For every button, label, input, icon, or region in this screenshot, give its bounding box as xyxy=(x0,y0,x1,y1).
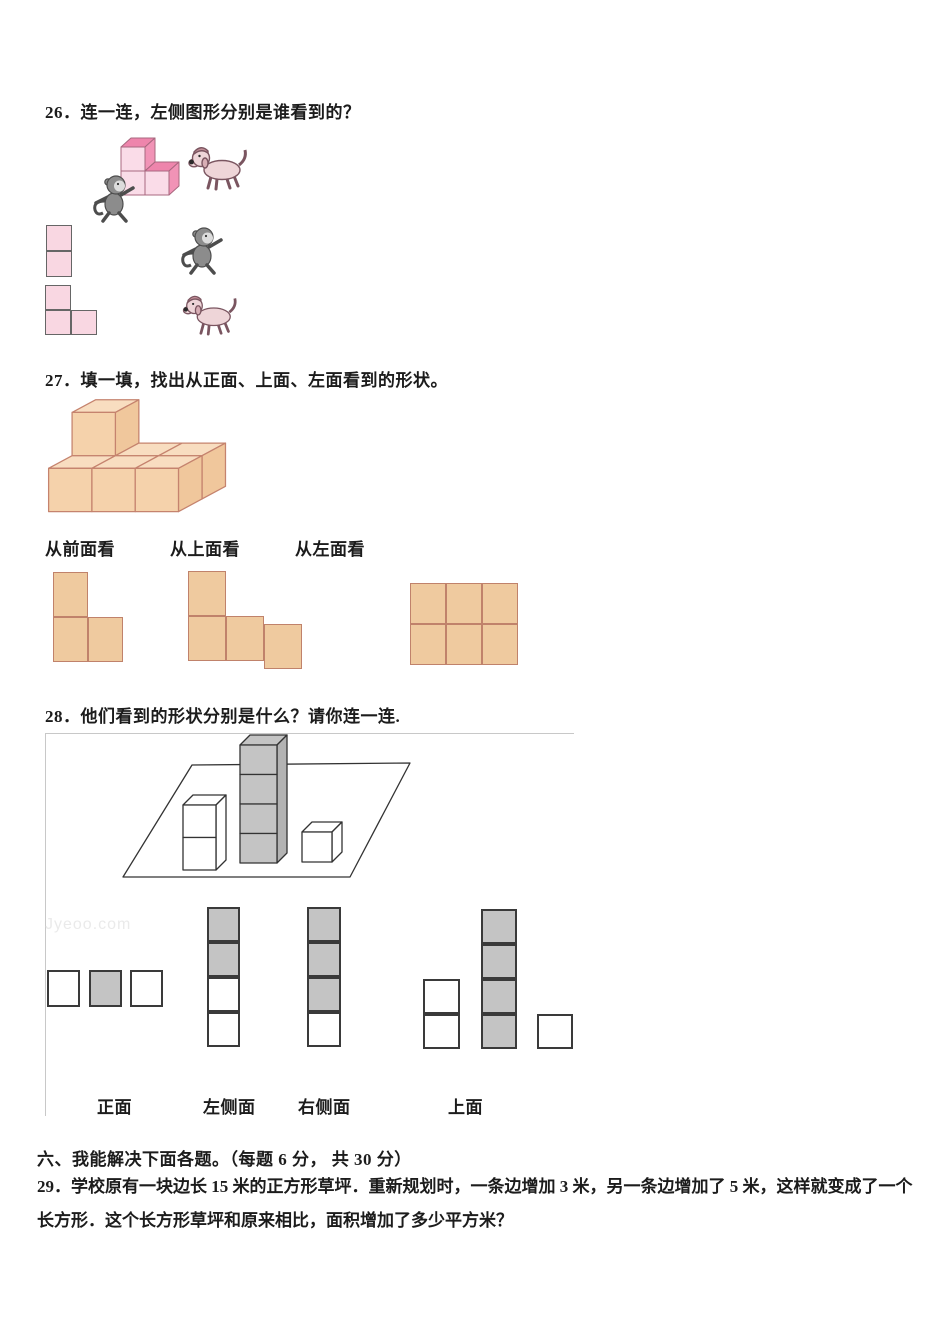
square-cell xyxy=(45,285,71,310)
view-label-front: 从前面看 xyxy=(45,535,115,560)
dog-icon xyxy=(181,292,241,336)
square-cell xyxy=(423,979,460,1014)
view-label-left: 从左面看 xyxy=(295,535,365,560)
question-29-line2: 长方形．这个长方形草坪和原来相比，面积增加了多少平方米？ xyxy=(37,1206,513,1231)
square-cell xyxy=(71,310,97,335)
square-cell xyxy=(207,907,240,942)
square-cell xyxy=(482,624,518,665)
square-cell xyxy=(188,571,226,616)
square-cell xyxy=(45,310,71,335)
square-cell xyxy=(89,970,122,1007)
question-26-text: 26．连一连，左侧图形分别是谁看到的？ xyxy=(45,98,361,123)
square-cell xyxy=(226,616,264,661)
square-cell xyxy=(207,942,240,977)
square-cell xyxy=(481,1014,517,1049)
square-cell xyxy=(188,616,226,661)
square-cell xyxy=(88,617,123,662)
square-cell xyxy=(410,624,446,665)
square-cell xyxy=(46,225,72,251)
label-right-side: 右侧面 xyxy=(298,1093,351,1118)
label-front-face: 正面 xyxy=(97,1093,132,1118)
label-top-face: 上面 xyxy=(448,1093,483,1118)
square-cell xyxy=(481,979,517,1014)
label-left-side: 左侧面 xyxy=(203,1093,256,1118)
square-cell xyxy=(446,624,482,665)
square-cell xyxy=(130,970,163,1007)
square-cell xyxy=(423,1014,460,1049)
question-27-text: 27．填一填，找出从正面、上面、左面看到的形状。 xyxy=(45,366,448,391)
square-cell xyxy=(537,1014,573,1049)
worksheet-page: 26．连一连，左侧图形分别是谁看到的？ xyxy=(0,0,950,1344)
square-cell xyxy=(264,624,302,669)
section-6-header: 六、我能解决下面各题。（每题 6 分， 共 30 分） xyxy=(37,1145,412,1170)
square-cell xyxy=(410,583,446,624)
square-cell xyxy=(307,977,341,1012)
square-cell xyxy=(307,942,341,977)
square-cell xyxy=(47,970,80,1007)
square-cell xyxy=(446,583,482,624)
square-cell xyxy=(482,583,518,624)
square-cell xyxy=(307,1012,341,1047)
question-28-text: 28．他们看到的形状分别是什么？请你连一连. xyxy=(45,702,400,727)
dog-icon xyxy=(188,143,250,191)
square-cell xyxy=(53,617,88,662)
monkey-icon xyxy=(90,172,138,224)
square-cell xyxy=(53,572,88,617)
question-29-line1: 29．学校原有一块边长 15 米的正方形草坪．重新规划时，一条边增加 3 米，另… xyxy=(37,1172,913,1197)
cube-scene-on-plane-figure xyxy=(100,733,430,883)
square-cell xyxy=(207,977,240,1012)
square-cell xyxy=(307,907,341,942)
monkey-icon xyxy=(178,224,226,276)
square-cell xyxy=(46,251,72,277)
square-cell xyxy=(207,1012,240,1047)
square-cell xyxy=(481,909,517,944)
watermark: Jyeoo.com xyxy=(45,916,131,934)
square-cell xyxy=(481,944,517,979)
view-label-top: 从上面看 xyxy=(170,535,240,560)
tan-cube-arrangement-figure xyxy=(45,398,230,517)
